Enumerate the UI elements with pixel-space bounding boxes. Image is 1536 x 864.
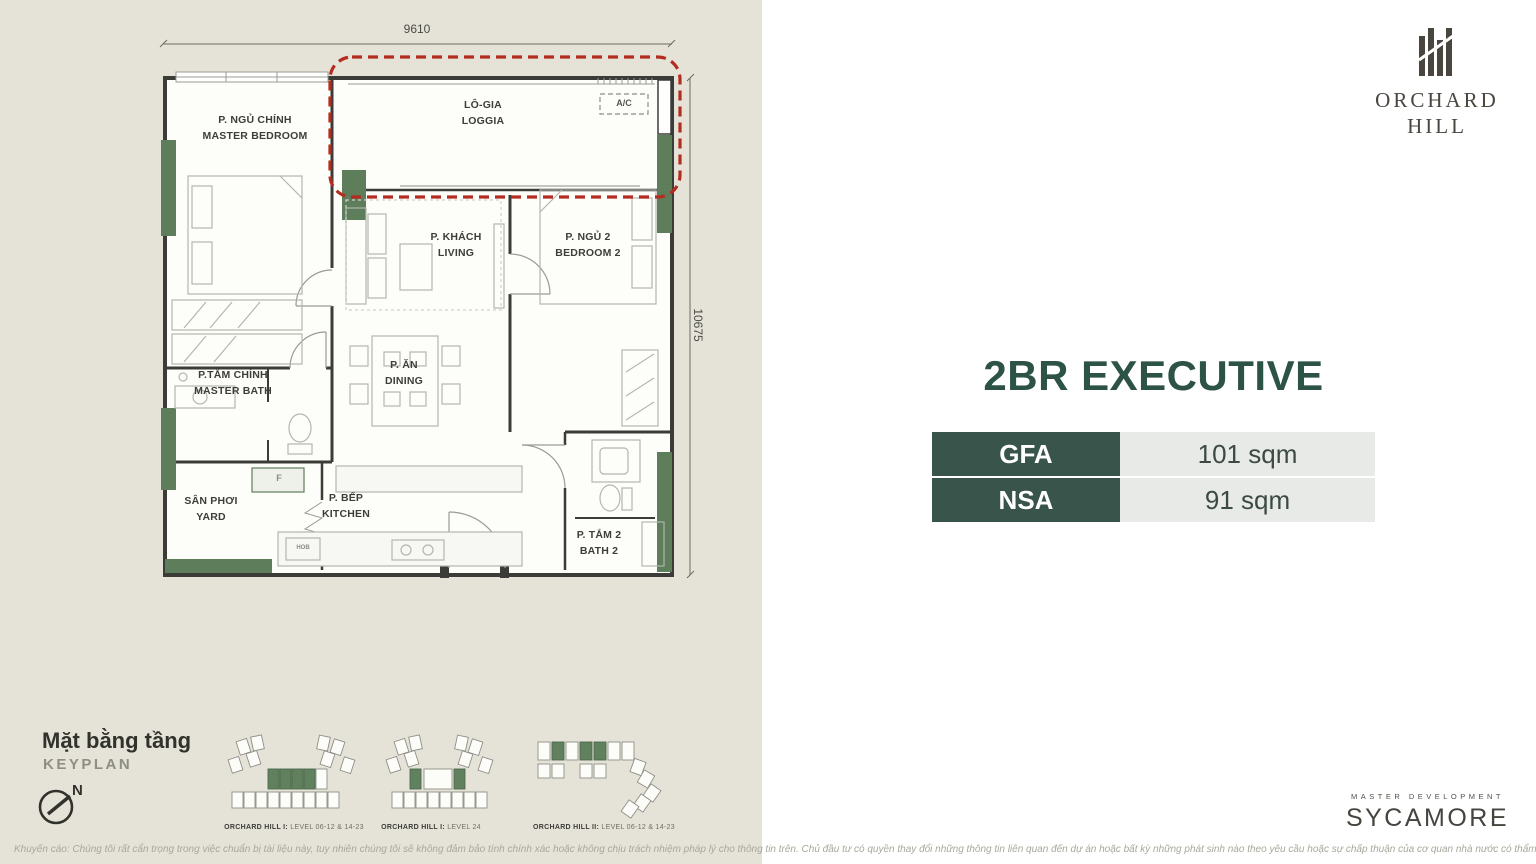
brochure-page: 9610 10675 P. NGỦ CHÍNHMASTER BEDROOM LÔ… <box>0 0 1536 864</box>
nsa-value: 91 sqm <box>1120 478 1375 522</box>
balcony-pilaster <box>658 80 671 134</box>
brand-line2: HILL <box>1357 114 1517 139</box>
orchard-hill-icon <box>1357 28 1517 84</box>
north-label: N <box>72 782 83 799</box>
keyplan-maps <box>228 735 661 818</box>
gfa-value: 101 sqm <box>1120 432 1375 476</box>
developer-name: SYCAMORE <box>1335 804 1520 833</box>
fridge-label: F <box>272 473 286 483</box>
keyplan-title-en: KEYPLAN <box>43 756 132 773</box>
brand-line1: ORCHARD <box>1357 88 1517 113</box>
nsa-label: NSA <box>932 478 1120 522</box>
gfa-label: GFA <box>932 432 1120 476</box>
spec-row-gfa: GFA 101 sqm <box>932 432 1375 476</box>
room-label-kitchen: P. BẾPKITCHEN <box>261 490 431 522</box>
keyplan-map-3 <box>538 742 661 818</box>
developer-tagline: MASTER DEVELOPMENT <box>1335 792 1520 801</box>
brand-logo: ORCHARD HILL <box>1357 0 1517 139</box>
room-label-dining: P. ĂNDINING <box>319 357 489 389</box>
keyplan-caption-3: ORCHARD HILL II: LEVEL 06-12 & 14-23 <box>484 824 724 831</box>
keyplan-map-2 <box>386 735 493 808</box>
keyplan-title-vi: Mặt bằng tầng <box>42 728 191 754</box>
ac-label: A/C <box>600 98 648 108</box>
compass-icon <box>40 791 72 823</box>
room-label-bedroom2: P. NGỦ 2BEDROOM 2 <box>503 229 673 261</box>
room-label-bath2: P. TẮM 2BATH 2 <box>514 527 684 559</box>
unit-title: 2BR EXECUTIVE <box>932 352 1375 400</box>
keyplan-map-1 <box>228 735 355 808</box>
floorplan-panel: 9610 10675 P. NGỦ CHÍNHMASTER BEDROOM LÔ… <box>0 0 762 864</box>
footer-disclaimer: Khuyến cáo: Chúng tôi rất cẩn trọng tron… <box>0 841 1536 864</box>
dimension-width: 9610 <box>367 22 467 36</box>
room-label-master-bath: P.TẮM CHÍNHMASTER BATH <box>148 367 318 399</box>
info-panel: ORCHARD HILL 2BR EXECUTIVE GFA 101 sqm N… <box>762 0 1536 864</box>
room-label-loggia: LÔ-GIALOGGIA <box>398 97 568 129</box>
developer-logo: MASTER DEVELOPMENT SYCAMORE <box>1335 792 1520 833</box>
spec-row-nsa: NSA 91 sqm <box>932 478 1375 522</box>
spec-table: GFA 101 sqm NSA 91 sqm <box>932 432 1375 524</box>
room-label-master-bedroom: P. NGỦ CHÍNHMASTER BEDROOM <box>170 112 340 144</box>
hob-label: HOB <box>288 545 318 551</box>
dimension-height: 10675 <box>691 275 705 375</box>
